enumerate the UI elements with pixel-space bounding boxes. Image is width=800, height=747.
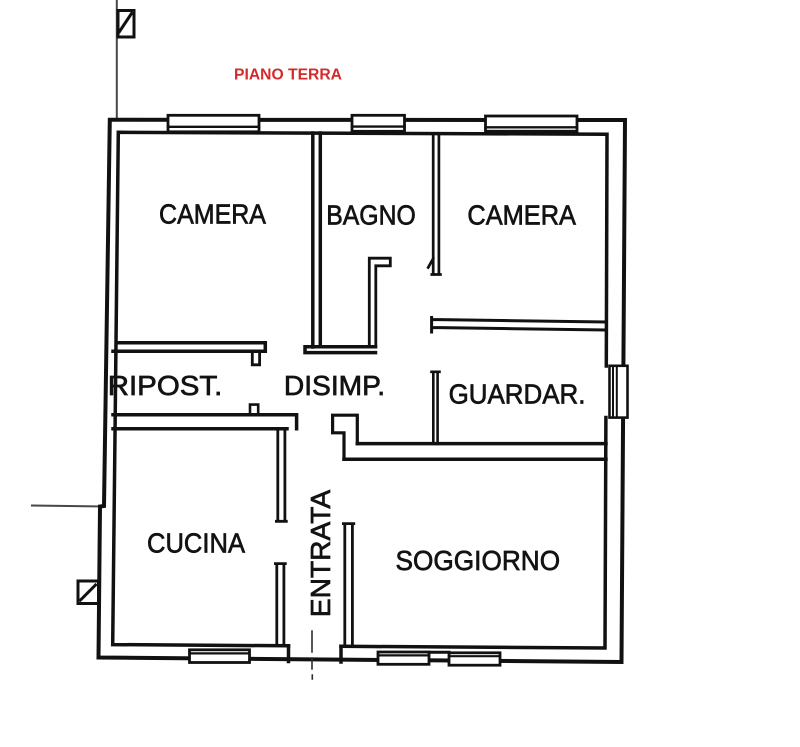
svg-text:ENTRATA: ENTRATA xyxy=(304,490,336,618)
svg-text:GUARDAR.: GUARDAR. xyxy=(449,377,586,409)
svg-text:CAMERA: CAMERA xyxy=(467,199,576,231)
svg-text:CUCINA: CUCINA xyxy=(147,527,245,558)
svg-text:SOGGIORNO: SOGGIORNO xyxy=(396,544,561,576)
svg-text:CAMERA: CAMERA xyxy=(159,198,266,230)
svg-text:PIANO TERRA: PIANO TERRA xyxy=(234,66,342,83)
svg-text:RIPOST.: RIPOST. xyxy=(108,370,223,401)
svg-text:DISIMP.: DISIMP. xyxy=(284,369,385,401)
svg-text:BAGNO: BAGNO xyxy=(326,199,416,231)
